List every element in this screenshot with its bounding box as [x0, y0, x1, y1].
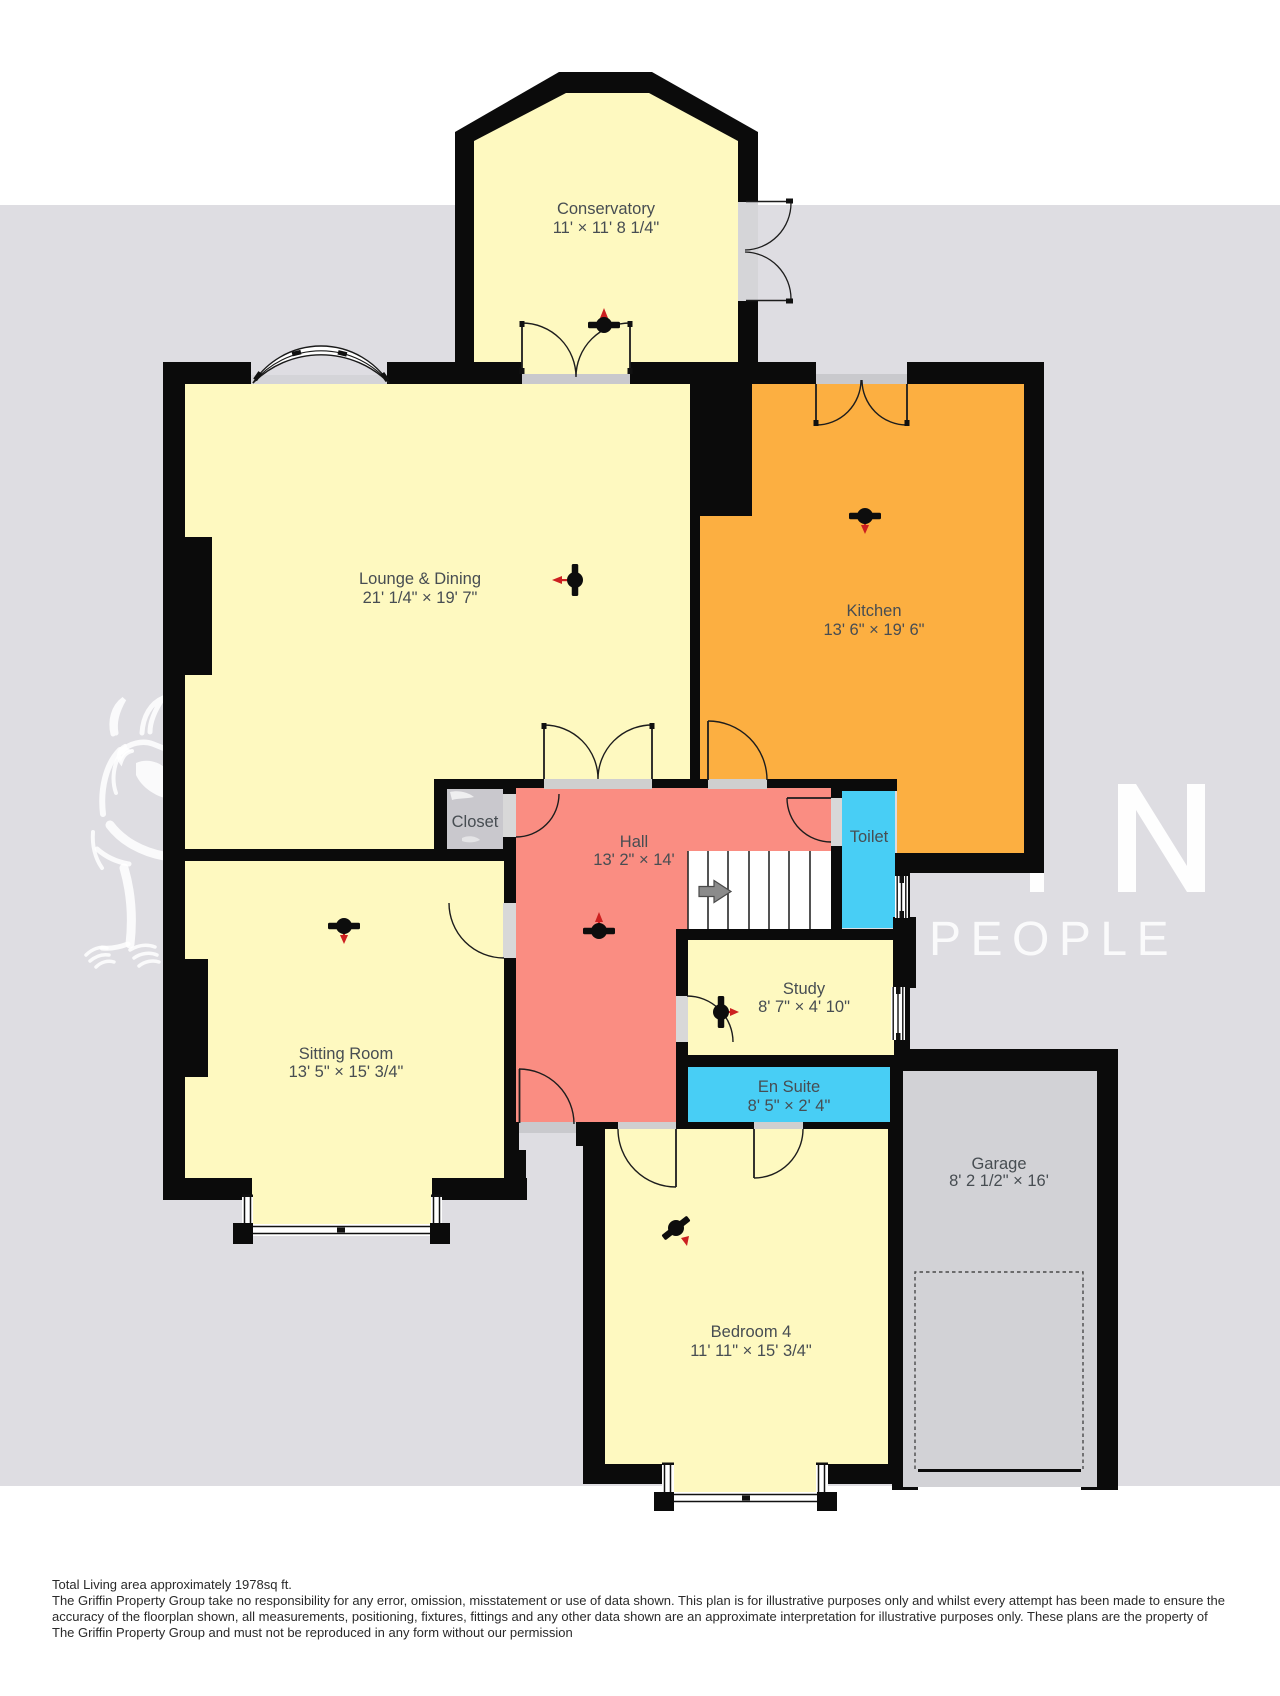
svg-text:PEOPLE: PEOPLE: [929, 913, 1178, 966]
svg-text:13' 5" × 15' 3/4": 13' 5" × 15' 3/4": [289, 1063, 404, 1081]
svg-text:Study: Study: [783, 980, 826, 998]
svg-text:13' 2" × 14': 13' 2" × 14': [593, 851, 674, 869]
svg-text:Garage: Garage: [971, 1155, 1026, 1173]
svg-text:Lounge & Dining: Lounge & Dining: [359, 570, 481, 588]
svg-text:13' 6" × 19' 6": 13' 6" × 19' 6": [823, 621, 924, 639]
svg-text:8' 2 1/2" × 16': 8' 2 1/2" × 16': [949, 1172, 1049, 1190]
svg-text:En Suite: En Suite: [758, 1078, 820, 1096]
svg-text:Sitting Room: Sitting Room: [299, 1045, 393, 1063]
svg-text:11' × 11' 8 1/4": 11' × 11' 8 1/4": [553, 219, 660, 237]
svg-text:11' 11" × 15' 3/4": 11' 11" × 15' 3/4": [690, 1342, 812, 1360]
svg-text:Hall: Hall: [620, 833, 648, 851]
svg-text:8' 7" × 4' 10": 8' 7" × 4' 10": [758, 998, 850, 1016]
svg-text:21' 1/4" × 19' 7": 21' 1/4" × 19' 7": [363, 589, 478, 607]
svg-text:Conservatory: Conservatory: [557, 200, 656, 218]
svg-text:Closet: Closet: [452, 813, 499, 831]
svg-text:Toilet: Toilet: [850, 828, 889, 846]
svg-text:Bedroom 4: Bedroom 4: [711, 1323, 792, 1341]
svg-text:8' 5" × 2' 4": 8' 5" × 2' 4": [748, 1097, 831, 1115]
svg-text:Kitchen: Kitchen: [846, 602, 901, 620]
